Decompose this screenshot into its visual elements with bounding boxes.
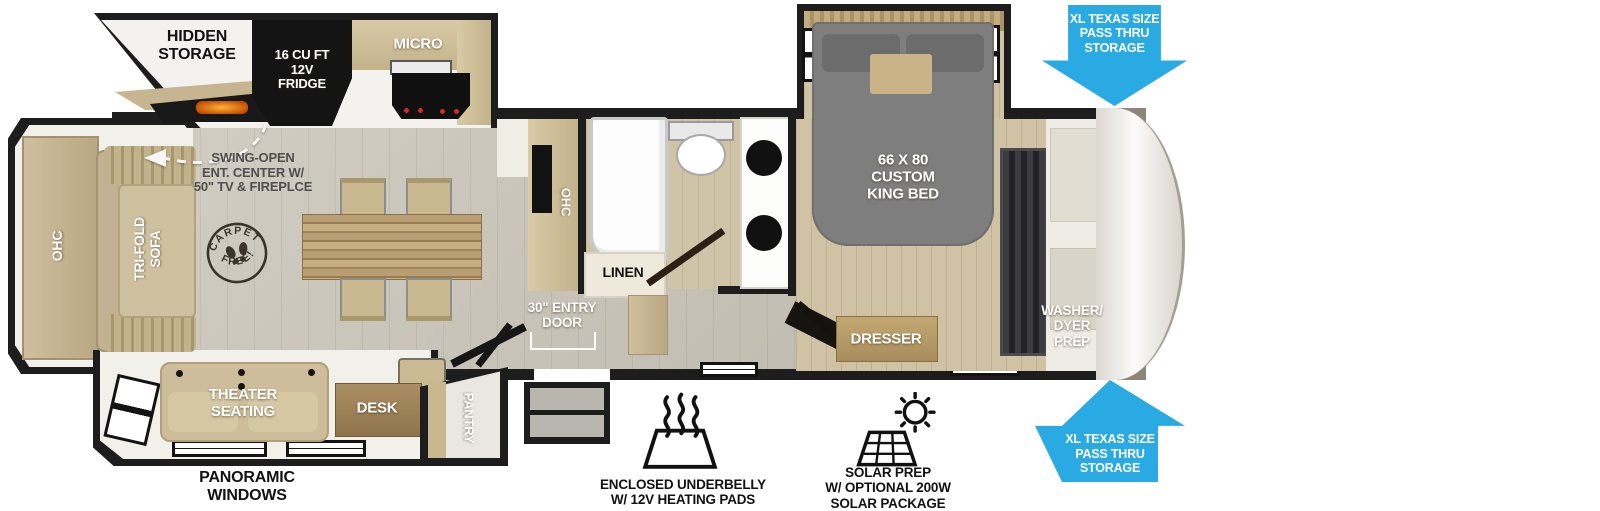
swing-open-note: SWING-OPEN ENT. CENTER W/ 50" TV & FIREP… [194,151,312,195]
stamp-bottom-text: FREE! [217,246,259,272]
solar-label: SOLAR PREP W/ OPTIONAL 200W SOLAR PACKAG… [825,465,951,511]
dining-table [302,214,482,280]
rv-floorplan: OHC HIDDEN STORAGE 16 CU FT 12V FRIDGE M… [0,0,1600,511]
front-cap [1096,108,1185,380]
entry-door-bracket [530,332,596,350]
hidden-storage-label: HIDDEN STORAGE [158,28,235,64]
counter-corner [497,119,528,177]
underbelly-label: ENCLOSED UNDERBELLY W/ 12V HEATING PADS [600,477,766,508]
panoramic-window-2 [286,440,366,457]
svg-text:FREE!: FREE! [217,246,259,272]
theater-seating-label: THEATER SEATING [209,387,277,421]
pass-thru-bottom-label: XL TEXAS SIZE PASS THRU STORAGE [1040,432,1180,474]
microwave [390,60,452,75]
pantry-shelf [428,382,446,458]
panoramic-windows-label: PANORAMIC WINDOWS [199,469,295,505]
shower [590,117,668,261]
pass-thru-arrow-up-icon: XL TEXAS SIZE PASS THRU STORAGE [1035,380,1185,482]
entry-steps [524,382,610,444]
panoramic-window-1 [172,440,267,457]
heating-pad-icon [638,392,722,472]
sofa-label: TRI-FOLD SOFA [132,217,164,281]
pass-thru-arrow-down-icon: XL TEXAS SIZE PASS THRU STORAGE [1042,5,1187,106]
sofa-arm-bottom [104,314,196,352]
fireplace-glow [196,101,248,114]
dresser-label: DRESSER [850,332,921,349]
entry-door-label: 30" ENTRY DOOR [528,300,597,331]
linen-label: LINEN [602,265,643,281]
vanity-sink-1 [746,140,782,176]
kitchen-appliance [532,145,552,213]
washer-dryer-label: WASHER/ DYER PREP [1041,303,1103,349]
dining-chair-3 [340,278,386,321]
bedroom-divider-wall [788,112,796,296]
theater-cupholders [176,370,183,377]
hall-cabinet [628,295,668,355]
rear-ohc-label: OHC [50,231,66,262]
entry-door-opening [526,369,618,380]
bed-blanket [870,54,932,94]
pass-thru-top-label: XL TEXAS SIZE PASS THRU STORAGE [1045,12,1185,54]
kitchen-ohc-label: OHC [558,188,573,216]
pantry-label: PANTRY [461,393,476,444]
fridge-label: 16 CU FT 12V FRIDGE [275,48,330,92]
toilet-bowl [676,134,726,176]
desk-label: DESK [357,401,398,418]
bottom-window-1 [700,362,758,377]
dining-chair-4 [406,278,452,321]
king-bed-label: 66 X 80 CUSTOM KING BED [867,153,939,204]
solar-panel-sun-icon [856,392,942,470]
vanity-sink-2 [746,215,782,251]
carpet-free-stamp: CARPET FREE! [199,215,275,291]
cooktop-knobs [404,108,409,113]
micro-label: MICRO [394,37,443,54]
